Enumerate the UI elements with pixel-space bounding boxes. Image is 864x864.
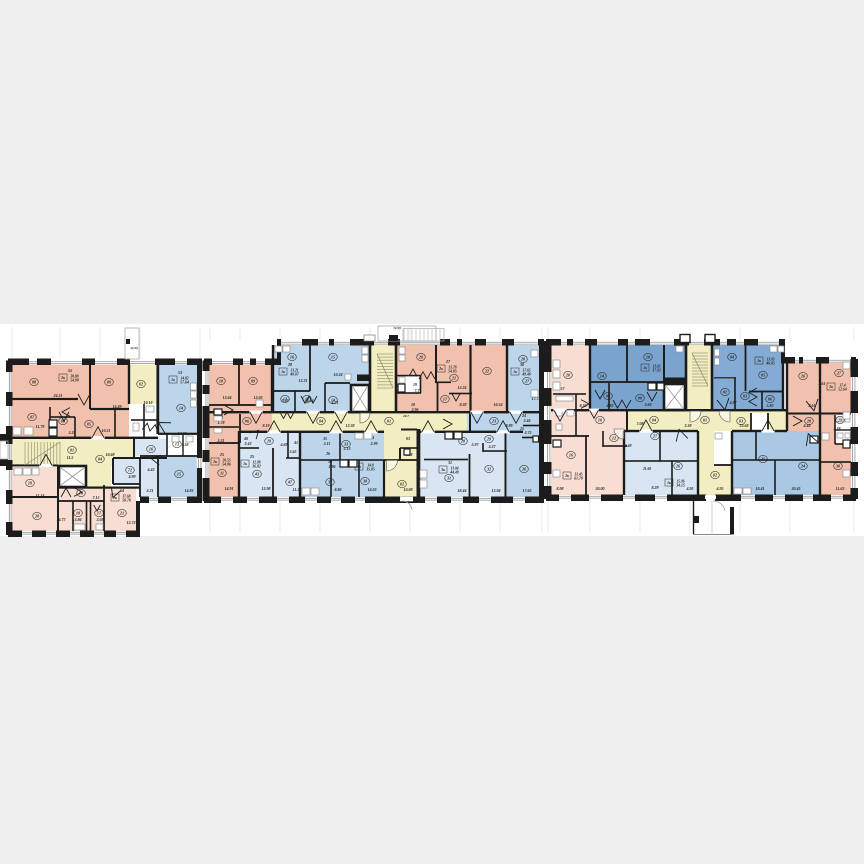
svg-text:8.98: 8.98 xyxy=(557,486,564,491)
svg-text:4.04: 4.04 xyxy=(306,398,314,403)
svg-text:44.49: 44.49 xyxy=(449,471,459,475)
svg-text:30: 30 xyxy=(519,362,525,367)
svg-text:11.14: 11.14 xyxy=(36,493,45,498)
svg-text:7.08: 7.08 xyxy=(637,421,644,426)
svg-text:41: 41 xyxy=(293,440,298,445)
svg-text:23: 23 xyxy=(491,419,496,424)
svg-text:8.50: 8.50 xyxy=(580,403,587,408)
svg-text:2.96: 2.96 xyxy=(411,407,419,412)
svg-text:4.95: 4.95 xyxy=(686,486,694,491)
svg-text:3.45: 3.45 xyxy=(289,449,297,454)
svg-text:54.85: 54.85 xyxy=(448,370,457,374)
svg-text:43: 43 xyxy=(254,472,259,477)
svg-text:2к: 2к xyxy=(212,460,217,464)
svg-text:37.92: 37.92 xyxy=(651,369,661,373)
svg-text:29: 29 xyxy=(266,439,272,444)
svg-text:5.82: 5.82 xyxy=(767,403,774,408)
svg-text:26: 26 xyxy=(521,467,527,472)
svg-text:10.34: 10.34 xyxy=(334,372,343,377)
svg-text:26: 26 xyxy=(800,374,806,379)
svg-text:36.82: 36.82 xyxy=(251,465,261,469)
svg-text:10.68: 10.68 xyxy=(106,452,115,457)
svg-text:34.15: 34.15 xyxy=(675,484,685,488)
svg-text:1к: 1к xyxy=(513,370,517,374)
svg-text:13.98: 13.98 xyxy=(262,486,271,491)
svg-text:14.83: 14.83 xyxy=(185,488,194,493)
svg-text:25: 25 xyxy=(760,457,765,462)
svg-text:21: 21 xyxy=(119,511,124,516)
svg-text:2.99: 2.99 xyxy=(370,441,378,446)
svg-text:10.08: 10.08 xyxy=(404,487,413,492)
svg-text:1к: 1к xyxy=(757,359,761,363)
svg-text:2к: 2к xyxy=(60,376,65,380)
svg-text:2.61: 2.61 xyxy=(818,381,826,386)
svg-text:13.24: 13.24 xyxy=(458,385,467,390)
svg-text:2.43: 2.43 xyxy=(281,398,289,403)
svg-text:1к: 1к xyxy=(643,366,647,370)
svg-text:20: 20 xyxy=(418,355,424,360)
svg-text:11.34: 11.34 xyxy=(293,487,302,492)
svg-text:30.45: 30.45 xyxy=(791,486,801,491)
svg-text:4.69: 4.69 xyxy=(280,442,288,447)
svg-text:23.68: 23.68 xyxy=(739,423,749,428)
svg-text:13.21: 13.21 xyxy=(299,378,308,383)
svg-text:4.83: 4.83 xyxy=(606,403,614,408)
svg-text:14.03: 14.03 xyxy=(368,487,377,492)
svg-text:61.78: 61.78 xyxy=(574,477,583,481)
svg-text:26: 26 xyxy=(675,464,681,469)
svg-text:1к: 1к xyxy=(171,378,175,382)
svg-text:1.58: 1.58 xyxy=(182,442,189,447)
svg-text:12.38: 12.38 xyxy=(346,423,355,428)
svg-text:02: 02 xyxy=(723,390,727,395)
svg-text:28: 28 xyxy=(520,357,526,362)
svg-text:28: 28 xyxy=(287,362,293,367)
svg-text:10.31: 10.31 xyxy=(102,428,111,433)
svg-text:4.44: 4.44 xyxy=(803,423,811,428)
svg-text:02: 02 xyxy=(713,473,717,478)
svg-text:30.00: 30.00 xyxy=(595,486,605,491)
svg-text:54: 54 xyxy=(120,488,124,493)
svg-text:4.87: 4.87 xyxy=(729,400,738,405)
svg-text:27: 27 xyxy=(445,359,451,364)
svg-text:1к: 1к xyxy=(243,462,247,466)
svg-text:18.44: 18.44 xyxy=(458,488,467,493)
svg-text:3.21: 3.21 xyxy=(146,488,154,493)
svg-text:29: 29 xyxy=(837,418,843,423)
svg-text:11: 11 xyxy=(220,471,224,476)
svg-text:2.38: 2.38 xyxy=(684,423,692,428)
svg-text:2.38: 2.38 xyxy=(833,426,841,431)
svg-text:14: 14 xyxy=(600,374,604,379)
svg-text:05: 05 xyxy=(87,422,91,427)
svg-text:31: 31 xyxy=(447,460,452,465)
svg-text:3.05: 3.05 xyxy=(96,517,104,522)
svg-text:49.48: 49.48 xyxy=(521,373,531,377)
svg-text:19: 19 xyxy=(413,382,417,387)
svg-text:26: 26 xyxy=(325,451,330,456)
svg-text:1к: 1к xyxy=(357,465,361,469)
svg-text:04: 04 xyxy=(98,457,102,462)
svg-text:22: 22 xyxy=(484,369,489,374)
svg-text:3.11: 3.11 xyxy=(323,441,331,446)
svg-text:10.18: 10.18 xyxy=(144,400,153,405)
svg-text:03: 03 xyxy=(743,394,747,399)
svg-text:29: 29 xyxy=(486,437,492,442)
svg-text:53: 53 xyxy=(178,370,182,375)
svg-text:38: 38 xyxy=(362,479,368,484)
svg-text:12: 12 xyxy=(612,436,616,441)
svg-text:1к: 1к xyxy=(667,481,671,485)
svg-text:3к: 3к xyxy=(440,468,445,472)
svg-text:25: 25 xyxy=(249,454,254,459)
svg-text:13.64: 13.64 xyxy=(223,395,232,400)
svg-text:26.7: 26.7 xyxy=(402,414,409,418)
svg-text:47: 47 xyxy=(287,480,293,485)
svg-text:72: 72 xyxy=(128,468,132,473)
svg-text:40.07: 40.07 xyxy=(289,373,300,377)
svg-text:54.98: 54.98 xyxy=(70,379,79,383)
svg-text:25: 25 xyxy=(519,426,524,431)
svg-text:3.44: 3.44 xyxy=(523,418,531,423)
svg-text:24.31: 24.31 xyxy=(53,393,63,398)
svg-text:55: 55 xyxy=(68,368,72,373)
svg-text:11.5: 11.5 xyxy=(67,455,74,460)
svg-text:35.85: 35.85 xyxy=(365,468,375,472)
svg-text:54.86: 54.86 xyxy=(222,463,231,467)
svg-text:8.38: 8.38 xyxy=(460,402,467,407)
svg-text:2.48: 2.48 xyxy=(624,443,632,448)
svg-text:5.97: 5.97 xyxy=(472,442,480,447)
svg-text:10.41: 10.41 xyxy=(756,486,765,491)
svg-text:02: 02 xyxy=(139,382,143,387)
svg-text:2.42: 2.42 xyxy=(244,441,252,446)
svg-text:31: 31 xyxy=(446,476,451,481)
svg-text:25: 25 xyxy=(219,452,224,457)
svg-text:8.29: 8.29 xyxy=(652,485,659,490)
svg-text:13.04: 13.04 xyxy=(492,488,501,493)
svg-text:24.05: 24.05 xyxy=(177,431,187,436)
svg-text:14.91: 14.91 xyxy=(225,486,234,491)
svg-text:27: 27 xyxy=(652,434,658,439)
svg-text:24: 24 xyxy=(800,464,805,469)
svg-text:04: 04 xyxy=(319,419,323,424)
svg-text:4(10): 4(10) xyxy=(129,346,138,350)
svg-text:01: 01 xyxy=(387,419,391,424)
svg-text:17.65: 17.65 xyxy=(523,488,532,493)
svg-text:4.21: 4.21 xyxy=(331,400,339,405)
svg-text:2к: 2к xyxy=(828,385,833,389)
svg-text:3.31: 3.31 xyxy=(217,438,225,443)
svg-text:2.96: 2.96 xyxy=(328,464,336,469)
svg-text:40.85: 40.85 xyxy=(765,362,775,366)
svg-text:11.62: 11.62 xyxy=(836,486,845,491)
svg-text:21.68: 21.68 xyxy=(642,467,651,471)
svg-text:2к: 2к xyxy=(564,474,569,478)
svg-text:20: 20 xyxy=(34,514,40,519)
svg-text:4.99: 4.99 xyxy=(128,474,136,479)
svg-text:3.60: 3.60 xyxy=(644,402,652,407)
svg-text:03: 03 xyxy=(406,436,410,441)
svg-text:3.86: 3.86 xyxy=(74,517,82,522)
svg-text:15: 15 xyxy=(331,355,335,360)
svg-text:3.29: 3.29 xyxy=(68,430,76,435)
svg-text:14.77: 14.77 xyxy=(57,517,67,522)
svg-text:32: 32 xyxy=(486,467,491,472)
svg-text:7.15: 7.15 xyxy=(93,495,100,500)
svg-text:2к: 2к xyxy=(438,367,443,371)
svg-text:10.54: 10.54 xyxy=(494,402,503,407)
svg-text:21: 21 xyxy=(451,376,456,381)
svg-text:01: 01 xyxy=(703,418,707,423)
svg-text:58.78: 58.78 xyxy=(122,499,131,503)
svg-text:05: 05 xyxy=(761,373,765,378)
svg-text:27: 27 xyxy=(524,379,530,384)
svg-text:1(10): 1(10) xyxy=(393,326,401,330)
svg-text:52.64: 52.64 xyxy=(838,388,847,392)
svg-text:1к: 1к xyxy=(281,370,285,374)
svg-text:11.79: 11.79 xyxy=(36,424,45,429)
svg-text:15: 15 xyxy=(177,472,181,477)
svg-text:37: 37 xyxy=(327,480,333,485)
svg-text:57.64: 57.64 xyxy=(180,381,189,385)
svg-text:12.73: 12.73 xyxy=(127,520,136,525)
svg-text:5.13: 5.13 xyxy=(344,446,351,451)
svg-text:01: 01 xyxy=(70,448,74,453)
svg-text:20: 20 xyxy=(565,373,571,378)
svg-text:04: 04 xyxy=(652,418,656,423)
svg-text:13.03: 13.03 xyxy=(254,395,263,400)
svg-text:8.19: 8.19 xyxy=(263,423,270,428)
svg-text:8.86: 8.86 xyxy=(335,487,342,492)
svg-text:4.42: 4.42 xyxy=(147,467,155,472)
svg-text:30: 30 xyxy=(835,464,841,469)
svg-text:3.75: 3.75 xyxy=(524,430,532,435)
svg-text:4.95: 4.95 xyxy=(716,486,724,491)
svg-text:02: 02 xyxy=(400,482,404,487)
svg-text:14: 14 xyxy=(179,406,183,411)
svg-text:14.49: 14.49 xyxy=(113,404,122,409)
svg-text:27: 27 xyxy=(836,371,842,376)
svg-text:3.37: 3.37 xyxy=(488,444,497,449)
svg-text:04: 04 xyxy=(730,355,734,360)
